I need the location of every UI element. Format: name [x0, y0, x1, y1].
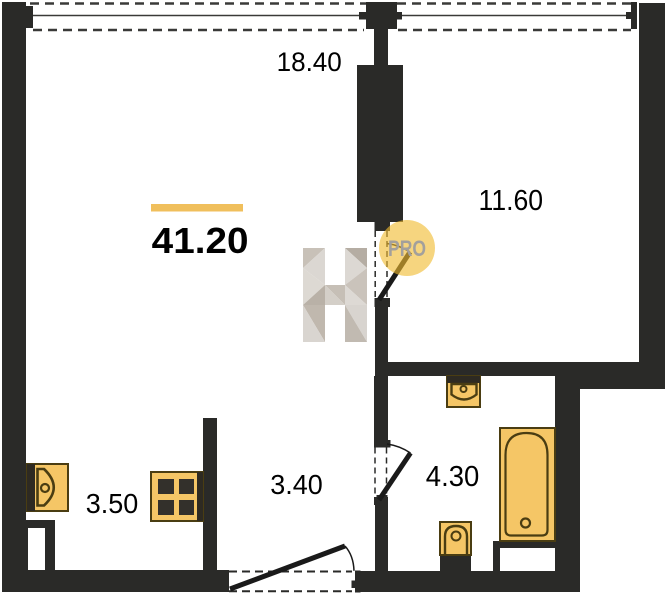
svg-text:3.50: 3.50 [86, 488, 139, 519]
svg-text:11.60: 11.60 [479, 185, 544, 217]
svg-text:4.30: 4.30 [426, 461, 480, 493]
svg-text:18.40: 18.40 [277, 47, 342, 77]
svg-text:41.20: 41.20 [152, 220, 249, 261]
svg-text:PRO: PRO [388, 236, 426, 261]
svg-text:3.40: 3.40 [270, 469, 323, 500]
